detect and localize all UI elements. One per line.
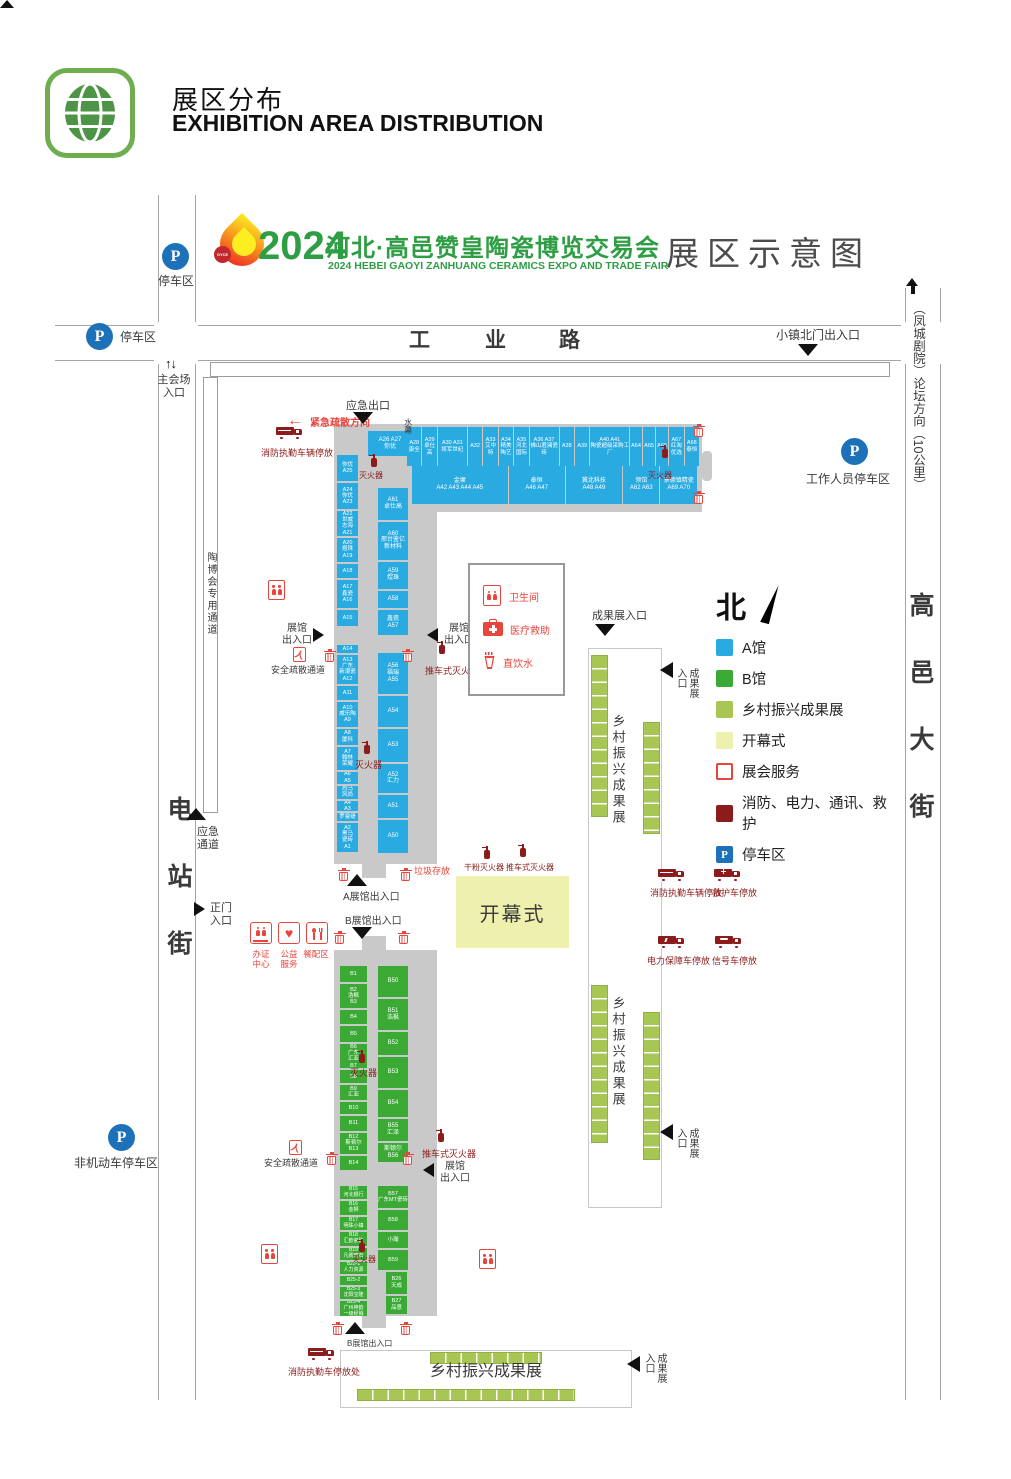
hall-a-booth-group: A61 卓仕高A60 邢台鉴亿 新材料A59 煜珠A58鑫瓷 A57 xyxy=(378,488,408,635)
toilet-icon xyxy=(268,580,285,600)
truck-ladder xyxy=(278,430,291,431)
bin-lid xyxy=(400,870,412,872)
map-label: 成果展入口 xyxy=(592,610,647,623)
map-label: 主会场 入口 xyxy=(150,374,198,400)
truck-window xyxy=(678,872,681,875)
hall-b-booth: B54 xyxy=(378,1090,408,1117)
map-label: 应急 通道 xyxy=(188,826,228,852)
person-body xyxy=(272,589,276,595)
legend-label: 展会服务 xyxy=(742,761,800,782)
map-label: 高邑大街 xyxy=(905,592,935,860)
hall-b-booth: B26 天成 xyxy=(386,1272,407,1294)
person-head xyxy=(488,591,490,593)
trash-bin-icon xyxy=(693,491,704,504)
ext-body xyxy=(520,848,526,857)
bin-body xyxy=(403,1156,412,1165)
hall-b-booth: B57 广东MT瓷砖 xyxy=(378,1186,408,1208)
fire-extinguisher-icon xyxy=(357,1238,367,1252)
person-body xyxy=(487,594,491,600)
truck-wheel xyxy=(733,878,738,883)
legend-item: 开幕式 xyxy=(716,730,896,751)
map-label: 展馆 出入口 xyxy=(436,1161,474,1185)
bin-body xyxy=(401,1326,410,1335)
legend-label: B馆 xyxy=(742,668,766,689)
entrance-arrow-down-icon xyxy=(798,344,818,356)
map-label: 灭火器 xyxy=(355,760,382,771)
person-head xyxy=(483,1254,485,1256)
map-label: 公益 服务 xyxy=(276,949,302,969)
ambulance-icon xyxy=(714,866,741,882)
entrance-arrow-up-icon xyxy=(186,808,206,820)
toilet-icon xyxy=(483,585,501,606)
hall-a-booth: A2 黑马 瓷砖 A1 xyxy=(337,823,358,852)
truck-wheel xyxy=(327,1357,332,1362)
first-aid-icon xyxy=(483,619,503,640)
legend-item: B馆 xyxy=(716,668,896,689)
bin-lid xyxy=(324,651,336,653)
person-glyph xyxy=(271,1249,275,1259)
entrance-arrow-left-icon xyxy=(423,1163,434,1177)
fire-extinguisher-icon xyxy=(362,740,372,754)
hall-b-booth: B10 xyxy=(340,1102,367,1115)
truck-wheel xyxy=(717,878,722,883)
map-label: 展馆 出入口 xyxy=(278,623,316,647)
map-label: 消防执勤车停放处 xyxy=(288,1367,360,1378)
map-label: 灭火器 xyxy=(648,471,672,481)
road-junction xyxy=(154,322,198,364)
service-center-icon xyxy=(250,922,272,944)
fork-stem xyxy=(320,932,322,940)
fork-glyph xyxy=(319,928,323,940)
ext-body xyxy=(662,449,668,458)
expo-title-en: 2024 HEBEI GAOYI ZANHUANG CERAMICS EXPO … xyxy=(328,260,668,272)
hall-a-booth: A52 汇力 xyxy=(378,764,408,792)
person-body xyxy=(493,594,497,600)
hall-a-booth: A30 A31 将军世纪 xyxy=(438,427,467,466)
person-head xyxy=(257,927,259,929)
arrow-head xyxy=(0,0,14,8)
ext-body xyxy=(439,645,445,654)
map-label: 安全疏散通道 xyxy=(264,1158,318,1169)
hall-a-booth-group: 你优 A25A24 你优 A23A22 世威 志海 A21A20 煜珠 A19A… xyxy=(337,455,358,626)
map-label: 电力保障车停放 xyxy=(647,956,710,967)
map-label: 成果展 入口 xyxy=(674,668,698,698)
ext-body xyxy=(364,745,370,754)
map-label: 乡村振兴成果展 xyxy=(610,996,626,1108)
hall-b-booth: B51 浩枫 xyxy=(378,999,408,1030)
hall-a-booth: 烈马 风尚 xyxy=(337,786,358,800)
boundary-wall xyxy=(210,362,890,377)
exhibition-map-page: 展区分布 EXHIBITION AREA DISTRIBUTION A26 A2… xyxy=(0,0,1011,1479)
hall-a-booth: A4 A3 xyxy=(337,801,358,811)
hall-a-booth: A20 煜珠 A19 xyxy=(337,538,358,562)
map-label: 停车区 xyxy=(120,330,156,344)
north-label: 北 xyxy=(716,583,746,627)
map-label: 安全疏散通道 xyxy=(271,665,325,676)
results-strip xyxy=(643,722,660,834)
entrance-arrow-right-icon xyxy=(194,902,205,916)
truck-window xyxy=(678,939,681,942)
hall-a-booth: A54 xyxy=(378,696,408,727)
hall-a-booth: A50 xyxy=(378,820,408,853)
hall-a-booth: A65 xyxy=(643,427,655,466)
hall-b-booth: B1 xyxy=(340,966,367,982)
fire-extinguisher-icon xyxy=(369,453,379,467)
hall-a-booth: A6 A5 xyxy=(337,772,358,784)
parking-icon: P xyxy=(162,243,189,270)
bin-body xyxy=(401,872,410,881)
ext-body xyxy=(484,850,490,859)
hall-b-booth: B53 xyxy=(378,1057,408,1088)
map-label: 成果展 入口 xyxy=(674,1128,698,1158)
map-label: 推车式灭火器 xyxy=(422,1149,476,1160)
truck-window xyxy=(296,430,299,433)
hall-b-booth-group: B26 天成B27 品意 xyxy=(386,1272,407,1314)
hall-b-booth: B12 斯顿尔 B13 xyxy=(340,1133,367,1154)
trash-bin-icon xyxy=(324,649,335,662)
entrance-arrow-down-icon xyxy=(595,624,615,636)
hall-a-booth: A11 xyxy=(337,686,358,700)
bin-body xyxy=(325,653,334,662)
person-head xyxy=(263,927,265,929)
map-label: 小镇北门出入口 xyxy=(776,328,860,342)
toilet-icon xyxy=(261,1244,278,1264)
hall-a-booth: A36 A37 佛山君澜瓷砖 xyxy=(530,427,559,466)
ext-neck xyxy=(361,1239,363,1243)
results-strip xyxy=(357,1389,575,1401)
legend-item: 消防、电力、通讯、救护 xyxy=(716,792,896,834)
ext-body xyxy=(359,1243,365,1252)
hall-a-booth-group: A28 康全A29 卓仕高A30 A31 将军世纪A32A33 艾中特A34 精… xyxy=(407,427,699,466)
truck-body xyxy=(308,1348,326,1356)
entrance-arrow-left-icon xyxy=(627,1356,640,1372)
ext-neck xyxy=(361,1050,363,1054)
map-label: 工 xyxy=(409,328,430,353)
map-label: （凤城剧院）论坛方向（10公里） xyxy=(910,302,925,491)
map-label: 办证 中心 xyxy=(248,949,274,969)
bin-body xyxy=(335,935,344,944)
truck-window xyxy=(735,939,738,942)
person-glyph xyxy=(489,1254,493,1264)
fire-truck-icon xyxy=(658,866,685,882)
person-head xyxy=(272,585,274,587)
truck-wheel xyxy=(734,945,739,950)
trash-bin-icon xyxy=(332,1322,343,1335)
service-label: 直饮水 xyxy=(503,655,533,670)
legend: 北 A馆B馆乡村振兴成果展开幕式展会服务消防、电力、通讯、救护P停车区 xyxy=(716,583,896,865)
bin-lid xyxy=(334,933,346,935)
person-head xyxy=(494,591,496,593)
results-strip xyxy=(591,655,608,817)
truck-body xyxy=(276,427,294,435)
bin-body xyxy=(327,1156,336,1165)
legend-item: 展会服务 xyxy=(716,761,896,782)
legend-label: 开幕式 xyxy=(742,730,786,751)
hall-a-booth: A67 红淘优选 xyxy=(669,427,683,466)
fire-extinguisher-icon xyxy=(518,843,528,857)
trash-bin-icon xyxy=(338,868,349,881)
signal-vehicle-icon xyxy=(715,933,742,949)
expo-title: 河北·高邑赞皇陶瓷博览交易会 xyxy=(326,228,660,263)
legend-swatch xyxy=(716,763,733,780)
bin-body xyxy=(333,1326,342,1335)
ext-neck xyxy=(441,641,443,645)
person-glyph xyxy=(483,1254,487,1264)
hall-b-booth: B4 xyxy=(340,1010,367,1024)
person-body xyxy=(265,1253,269,1259)
service-medical: 医疗救助 xyxy=(483,619,563,640)
spoon-stem xyxy=(313,933,315,940)
hall-b-booth: B9 汇亚 xyxy=(340,1085,367,1099)
truck-window xyxy=(328,1351,331,1354)
trash-bin-icon xyxy=(693,424,704,437)
trash-bin-icon xyxy=(334,931,345,944)
hall-b-booth: B2 浩枫 B3 xyxy=(340,984,367,1008)
trash-bin-icon xyxy=(326,1152,337,1165)
fire-extinguisher-icon xyxy=(436,1128,446,1142)
hall-a-booth: A35 河北国际 xyxy=(514,427,528,466)
parking-icon: P xyxy=(108,1124,135,1151)
bin-lid xyxy=(402,651,414,653)
truck-wheel xyxy=(295,436,300,441)
truck-wheel xyxy=(718,945,723,950)
map-label: A展馆出入口 xyxy=(343,892,400,904)
entrance-arrows-icon: ↑↓ xyxy=(165,356,176,371)
truck-wheel xyxy=(661,945,666,950)
trash-bin-icon xyxy=(400,868,411,881)
bin-body xyxy=(694,428,703,437)
hall-b-booth: B25-4 广州神韵 一级经销 xyxy=(340,1301,367,1316)
legend-label: 消防、电力、通讯、救护 xyxy=(742,792,896,834)
map-title: 展区示意图 xyxy=(666,227,871,275)
hall-a-booth: A15 xyxy=(337,610,358,626)
cup-icon xyxy=(484,656,495,669)
hall-a-booth: A10 威乐陶 A9 xyxy=(337,702,358,727)
entrance-arrow-up-icon xyxy=(345,1322,365,1334)
entrance-arrow-up-icon xyxy=(347,874,367,886)
hall-b-booth-group: B50B51 浩枫B52B53B54B55 汇泽斯顿尔 B56 xyxy=(378,966,408,1162)
truck-wheel xyxy=(677,878,682,883)
fire-extinguisher-icon xyxy=(437,640,447,654)
hall-a-booth-group: A56 福瑞 A55A54A53A52 汇力A51A50 xyxy=(378,653,408,853)
truck-wheel xyxy=(279,436,284,441)
arrow-stem xyxy=(911,286,915,294)
ext-body xyxy=(359,1054,365,1063)
person-body xyxy=(278,589,282,595)
legend-swatch xyxy=(716,670,733,687)
hall-b-booth: B16 金狮 xyxy=(340,1201,367,1214)
hall-b-booth-group: B57 广东MT瓷砖B58小瀚B59 xyxy=(378,1186,408,1270)
trash-bin-icon xyxy=(402,1152,413,1165)
map-label: 非机动车停车区 xyxy=(74,1156,158,1170)
north-indicator: 北 xyxy=(716,583,896,627)
service-label: 卫生间 xyxy=(509,589,539,604)
ext-body xyxy=(438,1133,444,1142)
parking-icon: P xyxy=(841,438,868,465)
map-label: 信号车停放 xyxy=(712,956,757,967)
legend-item: A馆 xyxy=(716,637,896,658)
person-glyph xyxy=(256,927,260,937)
hall-a-booth: A24 你优 A23 xyxy=(337,483,358,509)
ext-neck xyxy=(664,445,666,449)
truck-ladder xyxy=(310,1351,323,1352)
hall-a-booth-group: A14A13 广东 新潮瓷 A12A11A10 威乐陶 A9A8 厦科A7 翰林… xyxy=(337,645,358,852)
entrance-arrow-down-icon xyxy=(353,412,373,424)
hall-a-booth: A22 世威 志海 A21 xyxy=(337,511,358,535)
map-label: 成果展 入口 xyxy=(642,1353,666,1383)
truck-body xyxy=(658,869,676,877)
opening-label: 开幕式 xyxy=(480,898,546,927)
map-label: 路 xyxy=(559,328,580,353)
up-arrow-icon xyxy=(906,278,919,295)
truck-cross xyxy=(723,869,725,874)
hall-b-booth: B11 xyxy=(340,1116,367,1130)
person-glyph xyxy=(265,1249,269,1259)
hall-b-exit-stub xyxy=(362,1314,386,1328)
bin-lid xyxy=(693,493,705,495)
map-label: 灭火器 xyxy=(359,471,383,481)
legend-item: 乡村振兴成果展 xyxy=(716,699,896,720)
map-label: 救护车停放 xyxy=(712,888,757,899)
map-label: 正门 入口 xyxy=(210,902,232,928)
person-head xyxy=(489,1254,491,1256)
expo-badge: GYCE xyxy=(214,246,231,263)
person-body xyxy=(483,1258,487,1264)
services-box: 卫生间 医疗救助 直饮水 xyxy=(468,563,565,696)
map-label: 餐配区 xyxy=(300,949,332,959)
map-label: 灭火器 xyxy=(352,1255,376,1265)
hall-b-booth: B14 xyxy=(340,1156,367,1170)
legend-swatch xyxy=(716,732,733,749)
aid-handle xyxy=(489,619,497,623)
hall-a-booth: A18 xyxy=(337,564,358,578)
person-body xyxy=(271,1253,275,1259)
hall-a-booth: A64 xyxy=(630,427,642,466)
person-glyph xyxy=(493,591,497,601)
bin-lid xyxy=(693,426,705,428)
truck-signal xyxy=(720,938,728,940)
results-strip xyxy=(643,1012,660,1160)
ext-body xyxy=(371,458,377,467)
bin-body xyxy=(694,495,703,504)
map-label: 乡村振兴成果展 xyxy=(610,714,626,826)
bin-lid xyxy=(398,933,410,935)
heart-glyph: ♥ xyxy=(285,925,293,941)
fire-extinguisher-icon xyxy=(357,1049,367,1063)
compass-needle-icon xyxy=(760,583,778,624)
hall-a-booth: 金墀 A42 A43 A44 A45 xyxy=(412,466,508,504)
hall-b-booth: B27 品意 xyxy=(386,1296,407,1314)
hall-a-booth: 你优 A25 xyxy=(337,455,358,481)
dining-icon xyxy=(306,922,328,944)
truck-wheel xyxy=(311,1357,316,1362)
map-label: 消防执勤车辆停放 xyxy=(261,448,333,459)
hall-a-booth: A34 精美陶艺 xyxy=(499,427,513,466)
ext-neck xyxy=(366,741,368,745)
legend-items: A馆B馆乡村振兴成果展开幕式展会服务消防、电力、通讯、救护P停车区 xyxy=(716,637,896,865)
opening-ceremony-area: 开幕式 xyxy=(456,876,569,948)
service-toilet: 卫生间 xyxy=(483,585,563,607)
hall-a-booth: A17 鑫瓷 A16 xyxy=(337,580,358,608)
entrance-arrow-left-icon xyxy=(660,1124,673,1140)
bin-lid xyxy=(402,1154,414,1156)
person-head xyxy=(271,1249,273,1251)
legend-label: A馆 xyxy=(742,637,766,658)
person-body xyxy=(489,1258,493,1264)
fire-extinguisher-icon xyxy=(482,845,492,859)
hall-a-booth: A14 xyxy=(337,645,358,653)
runner-glyph: 人 xyxy=(289,1140,302,1155)
trash-bin-icon xyxy=(400,1322,411,1335)
entrance-arrow-left-icon xyxy=(660,662,673,678)
hall-b-booth: B17 明珠小镇 xyxy=(340,1217,367,1230)
map-label: 推车式灭火器 xyxy=(506,863,554,873)
truck-wheel xyxy=(661,878,666,883)
toilet-icon xyxy=(483,585,502,607)
bin-body xyxy=(399,935,408,944)
evacuation-runner-icon: 人 xyxy=(289,1140,302,1155)
hall-b-booth: B15 河北银行 xyxy=(340,1186,367,1199)
truck-ladder xyxy=(660,872,673,873)
drinking-water-icon xyxy=(483,652,496,673)
hall-b-booth: B5 xyxy=(340,1026,367,1042)
hall-a-booth: A29 卓仕高 xyxy=(422,427,436,466)
arrow-head xyxy=(906,278,918,286)
hall-a-booth: A40 A41 陶瓷超级采购工厂 xyxy=(590,427,629,466)
ext-neck xyxy=(373,454,375,458)
legend-swatch xyxy=(716,701,733,718)
power-vehicle-icon xyxy=(658,933,685,949)
ext-neck xyxy=(522,844,524,848)
first-aid-icon xyxy=(483,622,503,636)
hall-b-booth: B59 xyxy=(378,1250,408,1270)
hall-a-booth: A32 xyxy=(468,427,482,466)
bin-lid xyxy=(338,870,350,872)
parking-icon: P xyxy=(86,323,113,350)
desk-bar xyxy=(253,940,268,942)
person-body xyxy=(262,930,266,936)
legend-label: 乡村振兴成果展 xyxy=(742,699,844,720)
hall-a-booth: A61 卓仕高 xyxy=(378,488,408,520)
entrance-arrow-right-icon xyxy=(313,628,324,642)
toilet-icon xyxy=(479,1249,496,1269)
hall-a-booth: A60 邢台鉴亿 新材料 xyxy=(378,522,408,559)
ext-neck xyxy=(486,846,488,850)
person-body xyxy=(256,930,260,936)
hall-b-booth: B58 xyxy=(378,1210,408,1230)
person-head xyxy=(278,585,280,587)
person-glyph xyxy=(262,927,266,937)
hall-b-booth: B25-2 xyxy=(340,1276,367,1285)
trash-bin-icon xyxy=(402,649,413,662)
hall-a-booth: 鑫瓷 A57 xyxy=(378,610,408,635)
map-label: B展馆出入口 xyxy=(347,1339,392,1349)
bin-body xyxy=(339,872,348,881)
hall-b-booth: B50 xyxy=(378,966,408,997)
map-label: 干粉灭火器 xyxy=(464,863,504,873)
hall-a-booth: A33 艾中特 xyxy=(483,427,497,466)
hall-b-booth: B55 汇泽 xyxy=(378,1119,408,1142)
hall-b-booth: B52 xyxy=(378,1032,408,1055)
results-strip xyxy=(591,985,608,1143)
entrance-arrow-down-icon xyxy=(352,927,372,939)
legend-item: P停车区 xyxy=(716,844,896,865)
aid-cross xyxy=(492,625,495,633)
service-water: 直饮水 xyxy=(483,652,563,673)
ext-neck xyxy=(440,1129,442,1133)
bin-lid xyxy=(326,1154,338,1156)
hall-a-booth: 冀北科技 A48 A49 xyxy=(566,466,622,504)
